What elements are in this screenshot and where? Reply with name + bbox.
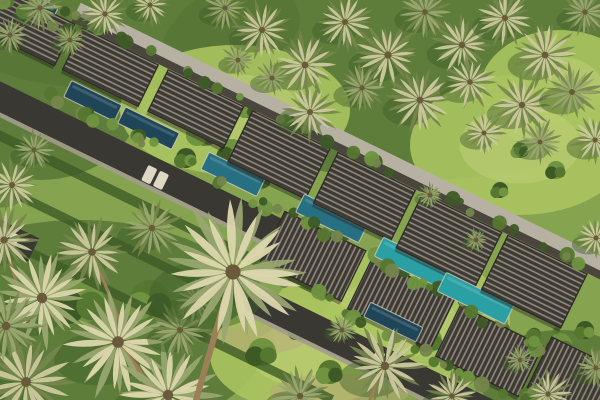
palm-crown: [422, 9, 428, 15]
palm-crown: [359, 85, 364, 90]
palm-crown: [342, 19, 348, 25]
palm-crown: [384, 51, 391, 58]
palm-crown: [297, 393, 303, 399]
palm-crown: [37, 293, 47, 303]
palm-crown: [223, 6, 228, 11]
palm-crown: [381, 362, 389, 370]
palm-crown: [518, 358, 523, 363]
palm-crown: [236, 58, 241, 63]
palm-crown: [502, 15, 508, 21]
palm-crown: [148, 3, 153, 8]
palm-crown: [307, 109, 313, 115]
palm-crown: [0, 236, 7, 243]
palm-crown: [149, 225, 155, 231]
palm-crown: [592, 137, 597, 142]
palm-crown: [2, 322, 10, 330]
palm-crown: [545, 391, 550, 396]
palm-crown: [449, 393, 455, 399]
palm-crown: [177, 327, 183, 333]
palm-crown: [225, 264, 240, 279]
palm-crown: [163, 390, 173, 400]
palm-crown: [519, 102, 525, 108]
palm-crown: [582, 9, 587, 14]
palm-crown: [538, 140, 543, 145]
palm-crown: [38, 6, 43, 11]
palm-crown: [302, 62, 309, 69]
palm-crown: [9, 182, 15, 188]
palm-crown: [474, 238, 479, 243]
palm-crown: [569, 89, 575, 95]
palm-crown: [88, 248, 96, 256]
palm-crown: [594, 366, 599, 371]
palm-crown: [102, 11, 107, 16]
palm-crown: [459, 42, 465, 48]
palm-crown: [417, 97, 424, 104]
palm-crown: [467, 79, 473, 85]
palm-crown: [542, 52, 549, 59]
palm-crown: [8, 33, 13, 38]
palm-crown: [482, 131, 487, 136]
aerial-resort-render: [0, 0, 600, 400]
palm-crown: [21, 377, 31, 387]
palm-crown: [68, 38, 73, 43]
palm-crown: [259, 27, 265, 33]
palm-crown: [270, 76, 275, 81]
palm-crown: [428, 193, 433, 198]
palm-crown: [112, 336, 124, 348]
screenshot-canvas: [0, 0, 600, 400]
palm-crown: [340, 328, 345, 333]
palm-crown: [594, 236, 599, 241]
palm-crown: [32, 148, 37, 153]
